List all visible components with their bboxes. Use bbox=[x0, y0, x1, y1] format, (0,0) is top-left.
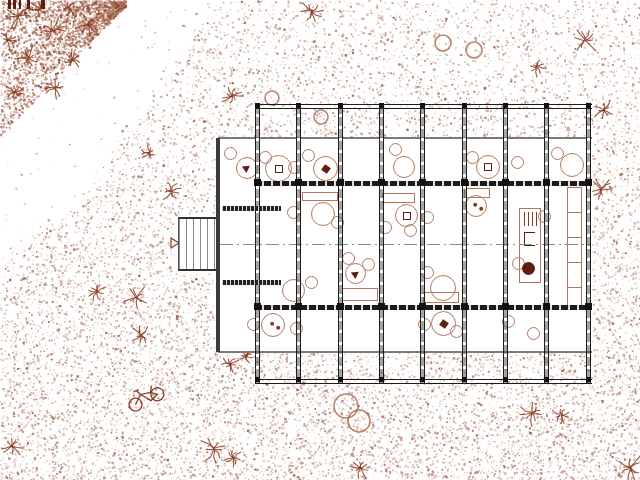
west-entry-deck bbox=[178, 217, 218, 271]
wall-junction bbox=[544, 103, 549, 108]
wall-junction bbox=[462, 377, 467, 382]
furniture-round-table bbox=[465, 195, 487, 217]
cabinet-grill bbox=[524, 212, 537, 226]
wall-shelf-column bbox=[567, 187, 582, 310]
wall-junction bbox=[254, 179, 261, 186]
wall-junction bbox=[420, 377, 425, 382]
wall-junction bbox=[543, 179, 550, 186]
bay-wall-vertical bbox=[379, 105, 384, 383]
wall-junction bbox=[586, 103, 591, 108]
wall-junction bbox=[420, 103, 425, 108]
facade-line-north bbox=[218, 137, 592, 139]
wall-junction bbox=[337, 179, 344, 186]
wall-junction bbox=[378, 303, 385, 310]
furniture-rect-table bbox=[382, 193, 415, 203]
bay-wall-vertical bbox=[462, 105, 467, 383]
wall-junction bbox=[585, 179, 592, 186]
hall-centerline bbox=[220, 244, 590, 245]
furniture-round-table bbox=[476, 155, 500, 179]
furniture-glyph-dots bbox=[270, 322, 274, 326]
wall-junction bbox=[295, 303, 302, 310]
furniture-round-table bbox=[313, 156, 338, 181]
wall-junction bbox=[337, 303, 344, 310]
furniture-glyph-square bbox=[403, 212, 411, 220]
furniture-round-table bbox=[282, 279, 305, 302]
furniture-round-table bbox=[395, 204, 418, 227]
wall-junction bbox=[255, 377, 260, 382]
furniture-glyph-bird bbox=[242, 162, 252, 173]
furniture-rect-table bbox=[423, 292, 459, 303]
west-wall bbox=[216, 138, 220, 352]
furniture-rect-table bbox=[302, 192, 338, 201]
wall-junction bbox=[254, 303, 261, 310]
stove-circle bbox=[522, 262, 535, 275]
furniture-round-table bbox=[261, 313, 285, 337]
bay-wall-vertical bbox=[503, 105, 508, 383]
scale-bar-tick bbox=[19, 0, 21, 9]
wall-junction bbox=[378, 179, 385, 186]
bay-wall-vertical bbox=[586, 105, 591, 383]
scale-bar-tick bbox=[8, 0, 11, 9]
vestibule-wall-bar bbox=[222, 280, 281, 285]
wall-junction bbox=[502, 303, 509, 310]
wall-junction bbox=[585, 303, 592, 310]
furniture-round-table bbox=[560, 153, 584, 177]
wall-junction bbox=[419, 303, 426, 310]
furniture-chair bbox=[224, 147, 237, 160]
wall-junction bbox=[503, 377, 508, 382]
furniture-glyph-dots bbox=[473, 203, 477, 207]
wall-junction bbox=[544, 377, 549, 382]
bay-wall-vertical bbox=[255, 105, 260, 383]
furniture-chair bbox=[527, 327, 540, 340]
wall-junction bbox=[379, 103, 384, 108]
wall-junction bbox=[461, 303, 468, 310]
furniture-round-table bbox=[393, 156, 415, 178]
wall-junction bbox=[296, 377, 301, 382]
furniture-glyph-square bbox=[484, 163, 492, 171]
wall-junction bbox=[419, 179, 426, 186]
wall-junction bbox=[503, 103, 508, 108]
furniture-rect-table bbox=[342, 288, 378, 301]
wall-junction bbox=[543, 303, 550, 310]
wall-junction bbox=[338, 103, 343, 108]
wall-junction bbox=[462, 103, 467, 108]
scale-bar-tick bbox=[41, 0, 45, 9]
bay-wall-vertical bbox=[420, 105, 425, 383]
furniture-round-table bbox=[265, 155, 292, 182]
wall-junction bbox=[502, 179, 509, 186]
furniture-chair bbox=[302, 149, 315, 162]
furniture-round-table bbox=[345, 263, 366, 284]
bay-wall-vertical bbox=[544, 105, 549, 383]
furniture-round-table bbox=[431, 311, 456, 336]
furniture-rect-table bbox=[464, 188, 490, 198]
furniture-chair bbox=[389, 143, 402, 156]
wall-junction bbox=[296, 103, 301, 108]
scale-bar-tick bbox=[27, 0, 30, 9]
facade-line-south bbox=[218, 351, 592, 353]
wall-junction bbox=[461, 179, 468, 186]
vestibule-wall-bar bbox=[222, 206, 281, 211]
architectural-site-plan bbox=[0, 0, 640, 480]
furniture-glyph-mark bbox=[321, 164, 331, 174]
bay-wall-vertical bbox=[296, 105, 301, 383]
furniture-chair bbox=[305, 276, 318, 289]
furniture-glyph-bird bbox=[350, 268, 360, 279]
bay-wall-vertical bbox=[338, 105, 343, 383]
wall-junction bbox=[586, 377, 591, 382]
wall-junction bbox=[379, 377, 384, 382]
furniture-glyph-square bbox=[275, 165, 283, 173]
wall-junction bbox=[295, 179, 302, 186]
wall-junction bbox=[255, 103, 260, 108]
furniture-glyph-mark bbox=[439, 319, 449, 329]
furniture-round-table bbox=[311, 202, 335, 226]
wall-junction bbox=[338, 377, 343, 382]
furniture-chair bbox=[511, 156, 524, 169]
scale-bar-tick bbox=[13, 0, 16, 9]
